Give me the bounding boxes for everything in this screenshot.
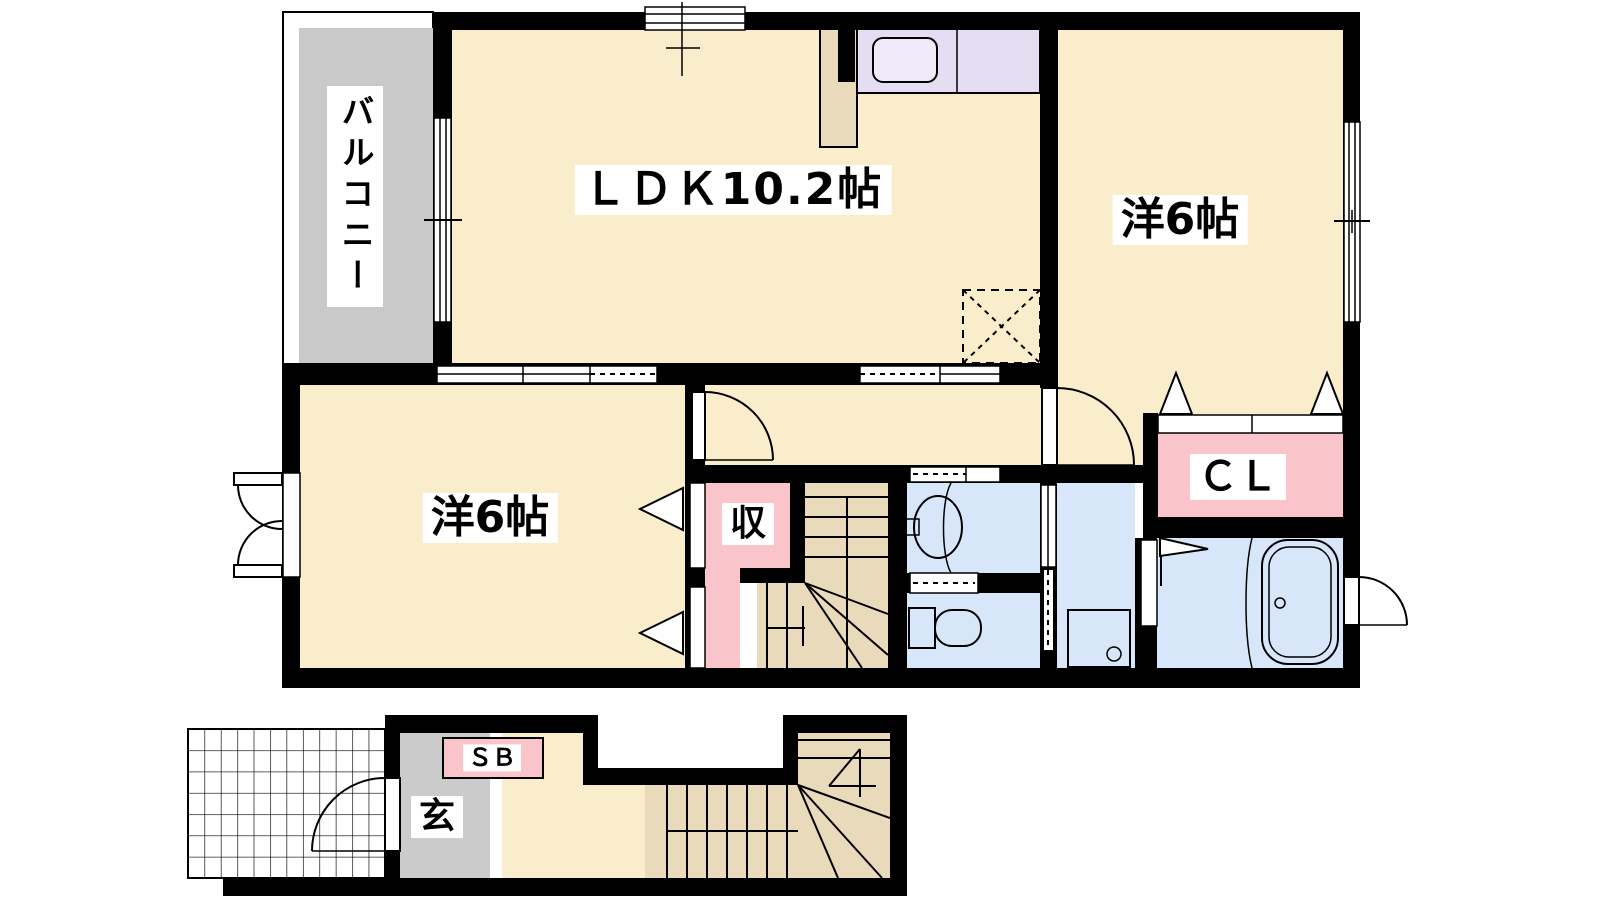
entrance-label: 玄 <box>411 796 463 838</box>
bath-outer-door-icon <box>1344 577 1407 625</box>
closet-label: ＣＬ <box>1190 454 1286 500</box>
storage-label: 収 <box>722 503 774 545</box>
floor-plan-drawing <box>0 0 1600 900</box>
shoe-box-label: ＳＢ <box>463 744 521 771</box>
wall-bottom <box>282 668 1360 688</box>
washroom-floor <box>907 483 1040 573</box>
wall-ldk-bedroom <box>1040 12 1058 388</box>
toilet-room-floor <box>907 593 1040 668</box>
wall-stairs-washroom <box>888 483 907 668</box>
bedroom-upper-label: 洋6帖 <box>1113 195 1248 245</box>
toilet-sliding-door-icon <box>910 573 978 593</box>
wall-kitchen-stub <box>838 27 855 82</box>
floor-plan-page: バルコニー ＬＤＫ10.2帖 洋6帖 洋6帖 収 ＣＬ ＳＢ 玄 <box>0 0 1600 900</box>
kitchen-sink-icon <box>873 38 937 82</box>
ldk-hall-sliding-door-icon <box>860 366 1000 383</box>
wall-1f-right <box>890 715 907 896</box>
balcony-label: バルコニー <box>327 86 383 307</box>
ldk-bedroom-sliding-door-icon <box>437 366 657 383</box>
washroom-sliding-door-icon <box>910 467 1000 482</box>
wall-1f-bottom <box>223 878 907 896</box>
bedroom-lower-casement-window-icon <box>234 473 300 577</box>
wall-1f-top-c <box>783 715 907 733</box>
wall-1f-left-upper <box>385 715 400 778</box>
wall-1f-left-lower <box>385 851 400 878</box>
wall-top <box>437 12 1360 30</box>
hall-1f-corridor <box>598 785 645 878</box>
wall-closet-bottom <box>1143 517 1345 538</box>
bedroom-upper-floor <box>1057 30 1343 465</box>
wall-storage-stairs <box>790 483 805 568</box>
ldk-label: ＬＤＫ10.2帖 <box>575 165 892 215</box>
bedroom-lower-label: 洋6帖 <box>423 493 558 543</box>
wall-storage-notch <box>740 568 805 583</box>
wall-1f-top-b <box>583 768 798 785</box>
first-floor <box>188 715 907 896</box>
porch-tile-grid-icon <box>188 729 385 878</box>
bathroom-floor <box>1157 538 1343 668</box>
wall-1f-top-a <box>385 715 598 733</box>
stairs-1f-upper <box>798 733 892 878</box>
